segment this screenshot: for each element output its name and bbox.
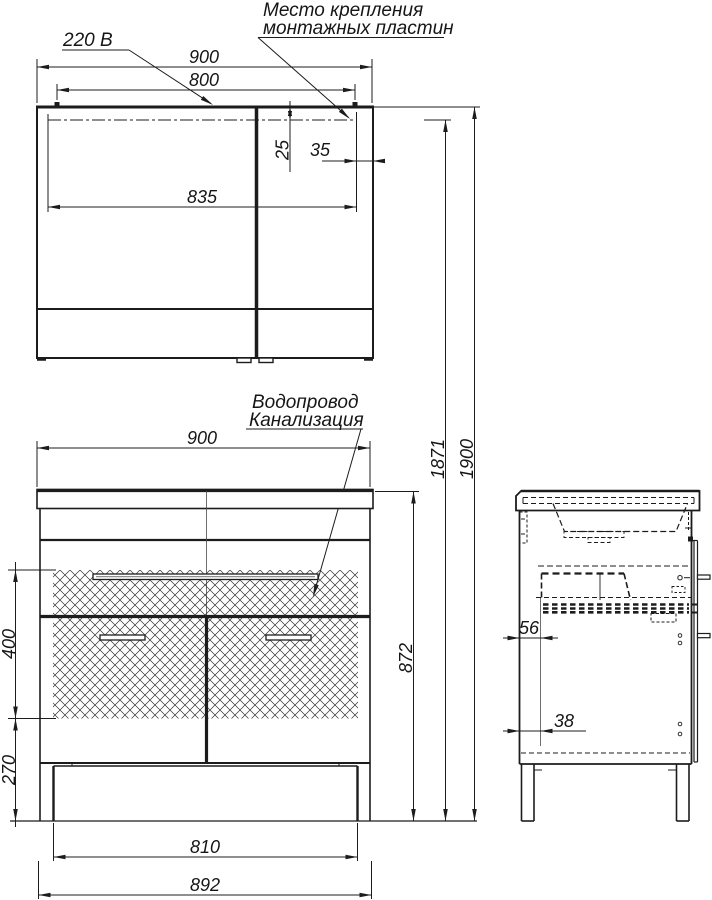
- door-handle-right: [266, 635, 311, 640]
- side-drawer-handle: [698, 575, 711, 579]
- hidden-drawer: [536, 566, 692, 622]
- side-countertop: [516, 491, 700, 511]
- dim-mount-side-offset: 35: [310, 140, 331, 160]
- countertop: [37, 490, 373, 509]
- side-dimensions: 56 38: [503, 598, 586, 746]
- vanity-front-view: [37, 490, 373, 822]
- fastener-marks: [672, 576, 690, 736]
- dim-hatch-zone-height: 400: [0, 629, 19, 659]
- installation-drawing: 900 800 25 35 835 220 В Место крепления …: [0, 0, 712, 900]
- dim-mirror-width: 900: [189, 47, 219, 67]
- dim-vanity-width: 900: [187, 428, 217, 448]
- dim-mount-height: 1871: [428, 439, 448, 479]
- side-door-handle: [698, 634, 711, 638]
- side-legs: [522, 764, 690, 821]
- dim-vanity-height: 872: [396, 643, 416, 673]
- dim-total-height: 1900: [457, 439, 477, 479]
- vanity-side-view: 56 38: [503, 491, 710, 821]
- dim-mount-top-offset: 25: [273, 139, 293, 161]
- mounting-point-left: [55, 102, 60, 107]
- back-bracket: [520, 512, 528, 543]
- mirror-cabinet-front-view: [36, 102, 480, 363]
- mounting-point-right: [353, 102, 358, 107]
- mirror-handle-right: [259, 358, 273, 363]
- mirror-handle-left: [237, 358, 251, 363]
- dim-lower-zone-height: 270: [0, 755, 19, 786]
- dim-back-offset-upper: 56: [519, 618, 540, 638]
- overall-dimensions: 1871 1900: [428, 107, 477, 821]
- dim-back-offset-lower: 38: [554, 711, 574, 731]
- mounting-plates-leader: Место крепления монтажных пластин: [258, 0, 454, 119]
- dim-plinth-width: 810: [190, 837, 220, 857]
- plumbing-label-line2: Канализация: [249, 410, 364, 431]
- dim-body-width: 892: [190, 875, 220, 895]
- door-handle-left: [100, 635, 145, 640]
- dim-mirror-inner-span: 835: [187, 187, 218, 207]
- dim-mount-spacing: 800: [189, 70, 219, 90]
- sink-drain: [588, 538, 610, 543]
- power-label: 220 В: [62, 30, 113, 51]
- mounting-label-line2: монтажных пластин: [263, 18, 454, 39]
